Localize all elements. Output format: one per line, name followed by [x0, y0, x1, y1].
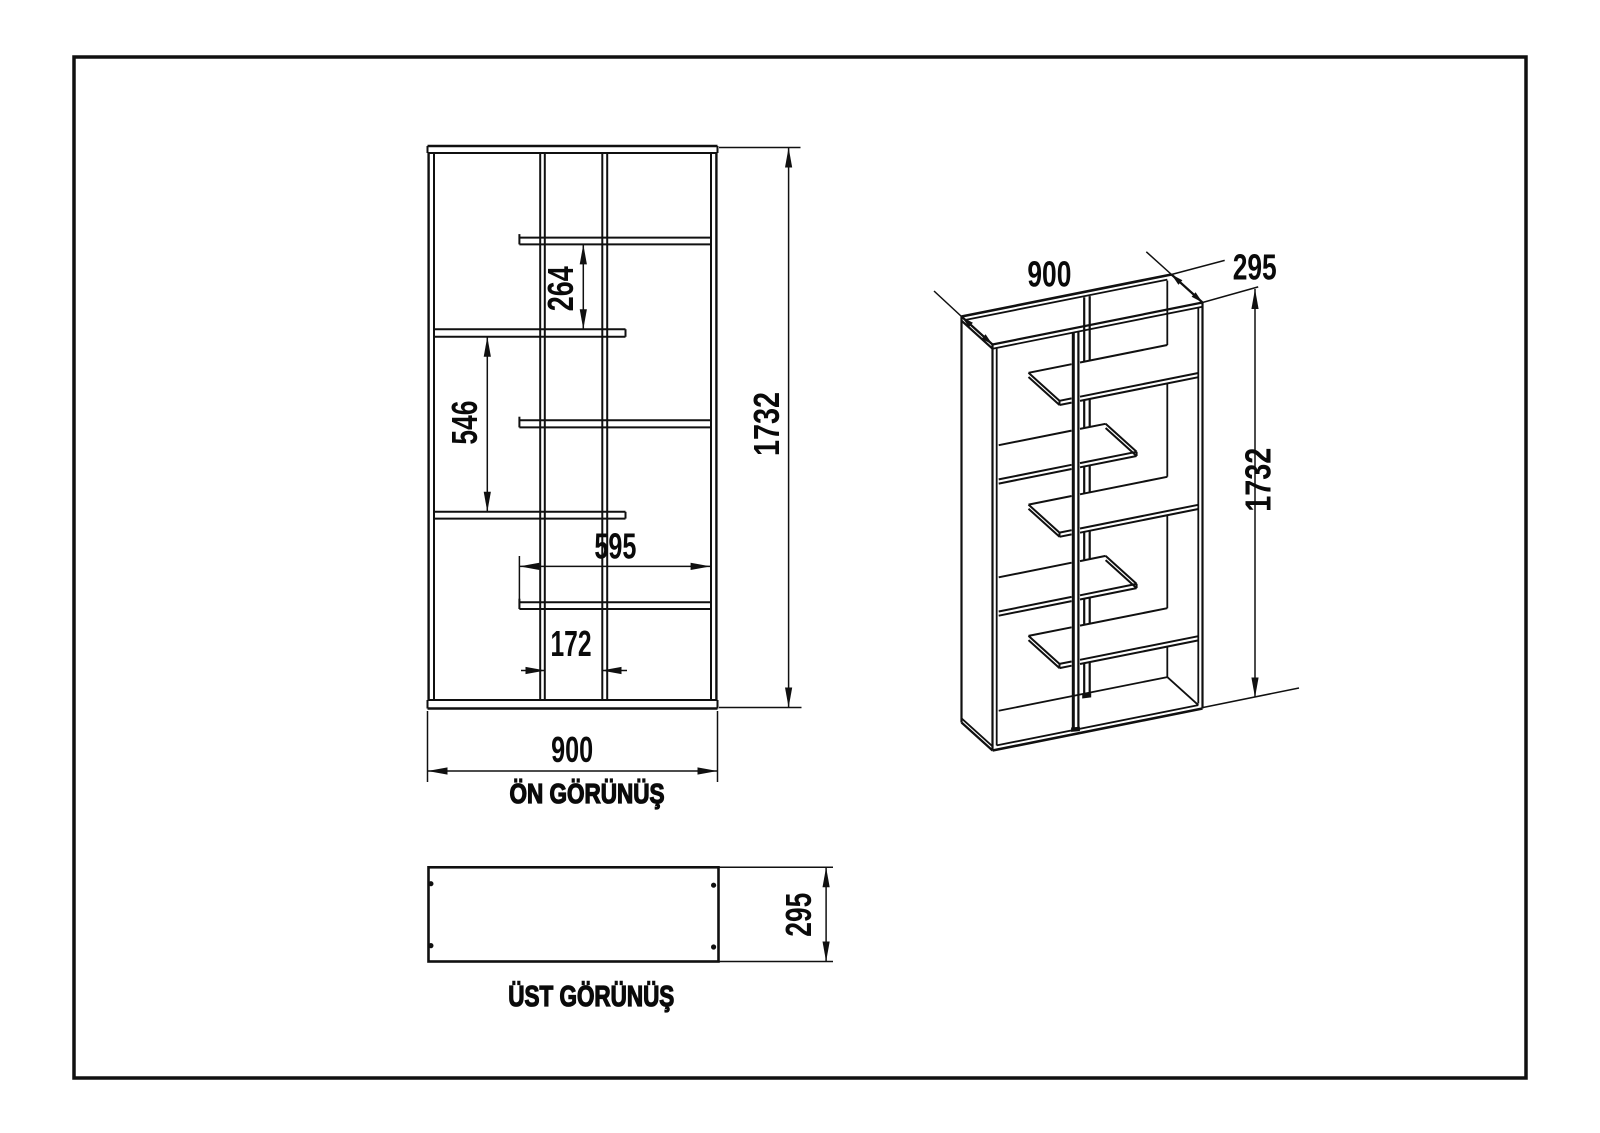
- svg-text:264: 264: [540, 266, 581, 311]
- svg-text:ÜST GÖRÜNÜŞ: ÜST GÖRÜNÜŞ: [508, 980, 674, 1013]
- svg-text:900: 900: [1027, 254, 1071, 295]
- svg-text:ÖN GÖRÜNÜŞ: ÖN GÖRÜNÜŞ: [510, 778, 665, 809]
- svg-text:546: 546: [444, 401, 485, 445]
- svg-text:172: 172: [551, 623, 592, 664]
- svg-text:295: 295: [778, 893, 819, 937]
- svg-text:295: 295: [1233, 246, 1277, 287]
- svg-text:1732: 1732: [1238, 448, 1279, 512]
- svg-text:595: 595: [594, 525, 636, 566]
- svg-text:1732: 1732: [746, 392, 787, 456]
- svg-text:900: 900: [551, 729, 593, 770]
